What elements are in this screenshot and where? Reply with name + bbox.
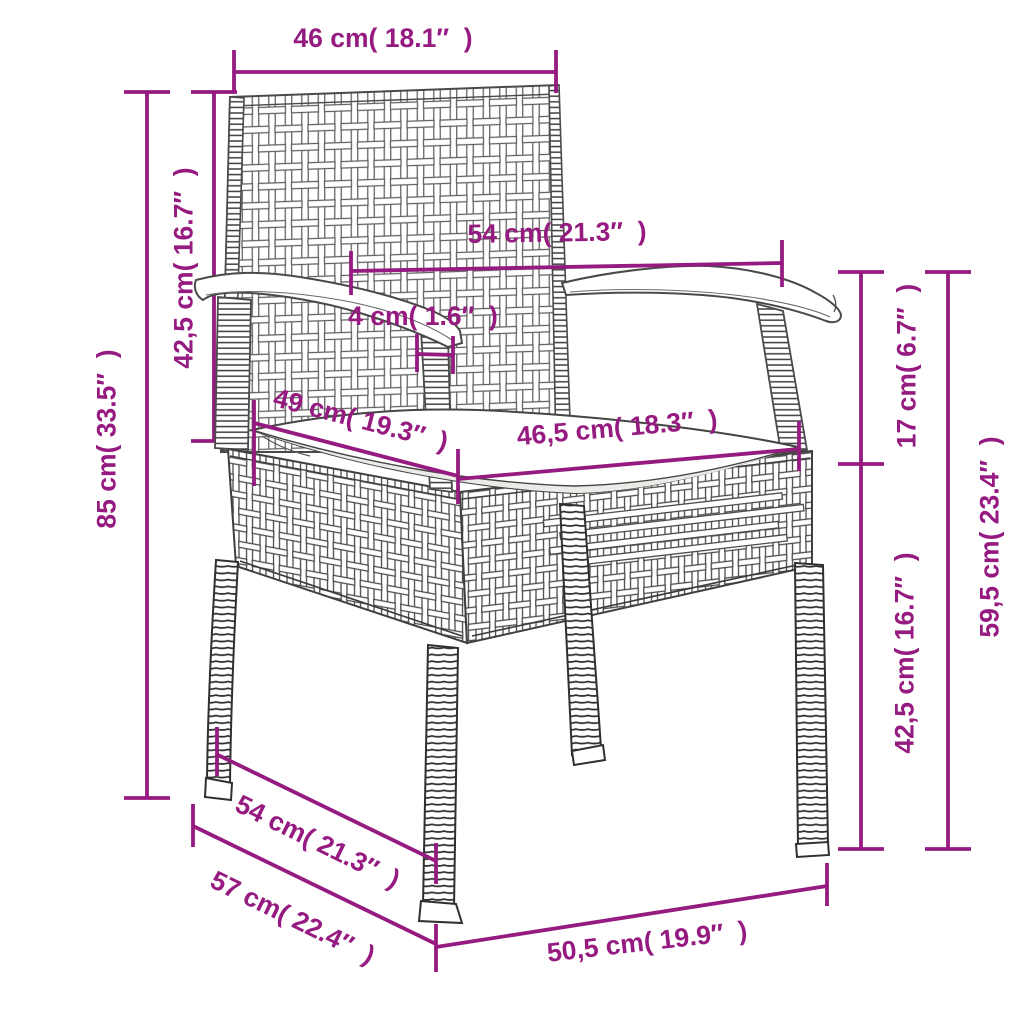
svg-text:42,5 cm( 16.7″ ): 42,5 cm( 16.7″ ): [890, 552, 920, 753]
svg-text:17 cm( 6.7″ ): 17 cm( 6.7″ ): [892, 284, 922, 448]
svg-text:4 cm( 1.6″ ): 4 cm( 1.6″ ): [348, 301, 498, 331]
svg-text:46 cm( 18.1″ ): 46 cm( 18.1″ ): [293, 23, 472, 53]
svg-text:85 cm( 33.5″ ): 85 cm( 33.5″ ): [92, 349, 122, 528]
svg-text:59,5 cm( 23.4″ ): 59,5 cm( 23.4″ ): [975, 436, 1005, 637]
svg-text:54 cm( 21.3″ ): 54 cm( 21.3″ ): [467, 216, 647, 249]
svg-text:42,5 cm( 16.7″ ): 42,5 cm( 16.7″ ): [169, 167, 199, 368]
